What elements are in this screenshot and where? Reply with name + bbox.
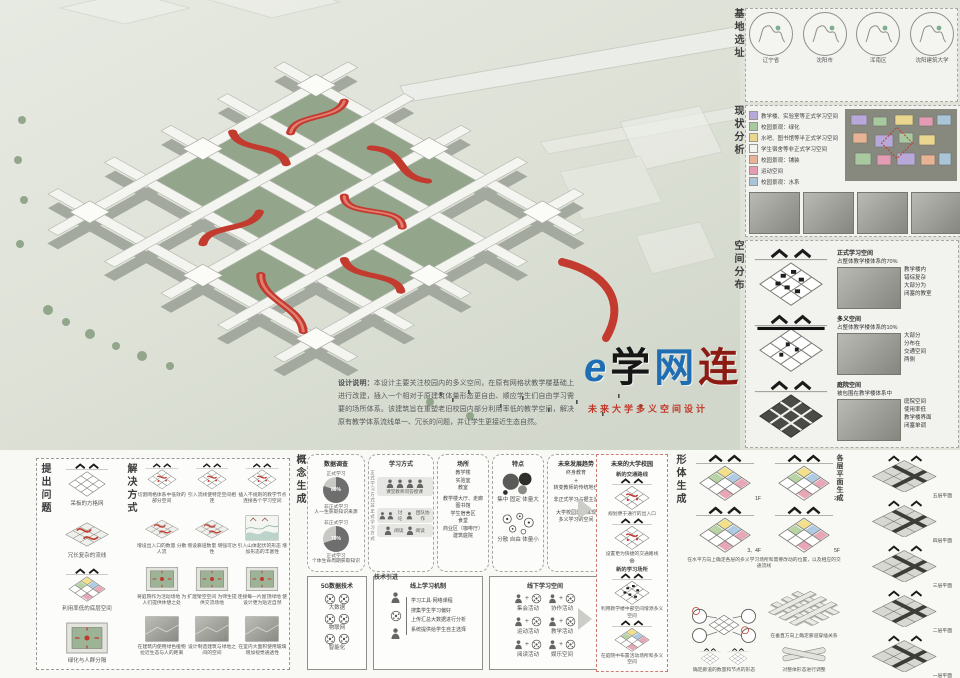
space-distribution-label: 空间分布 (732, 240, 742, 448)
plan-1f (690, 454, 760, 504)
polysemous-space-diagram (749, 314, 833, 376)
network-icon (324, 613, 336, 625)
leisure-icon (548, 640, 557, 650)
site-map-district: 浑南区 (856, 12, 900, 65)
presentation-board: e 学 网 连 未来大学多义空间设计 设计说明：本设计主要关注校园内的多义空间，… (0, 0, 960, 678)
problem-diagram: 绿化与人群分隔 (51, 620, 123, 665)
entrance-plan-diagram (606, 478, 658, 512)
site-photo (749, 192, 800, 234)
plan-5f (769, 506, 839, 556)
smart-icon (324, 633, 336, 645)
places-box: 场所 教学楼 实验室 教室 教学楼大厅、走廊 图书馆 学生宿舍区 食堂 商业区（… (437, 454, 489, 572)
data-survey-box: 数据调查 正式学习 80% 非正式学习 人一生获取知识来源 非正式学习 70% … (307, 454, 365, 572)
offline-activity: + 教学活动 (548, 615, 576, 636)
solution-diagram: 切割网格体系中低效的部分空间 (137, 463, 186, 513)
mountain-form-diagram (240, 514, 284, 542)
problem-label: 提出问题 (39, 463, 49, 665)
person-icon (384, 526, 392, 536)
courtyard-plan-diagram (606, 620, 658, 654)
formal-space-diagram (749, 248, 833, 310)
legend-swatch (749, 177, 758, 186)
data-upload-icon (390, 610, 402, 622)
teaching-icon (548, 617, 557, 627)
data-node-icon (338, 593, 350, 605)
node-detail-diagram (686, 604, 762, 646)
site-photo (911, 192, 960, 234)
distribution-row-formal: 正式学习空间 占整体教学楼体系的70% 教学楼内 错综复杂 大部分为 闭塞的教室 (749, 248, 955, 310)
person-icon (386, 479, 394, 489)
rigid-grid-diagram (59, 463, 115, 499)
solution-diagram: 引入流线使特定空间相连 (187, 463, 236, 513)
corridor-node-step: 确定廊道的数量和节点的形态 (686, 572, 762, 674)
solution-diagram: 在室内大面积使用玻璃 增加视觉通透性 (238, 615, 287, 665)
person-icon (396, 479, 404, 489)
student-icon (390, 628, 401, 640)
floor-plate-diagram: 五层平面 (845, 454, 958, 499)
future-campus-column: 未来的大学校园 新的交通路线 规划便于通行的出入口 设置更为快捷的交通路线 ⊕ … (596, 454, 668, 672)
node-icon (531, 639, 542, 650)
glass-interior-photo (240, 615, 284, 643)
person-icon (406, 511, 413, 521)
entrance-diagram (140, 514, 184, 542)
floor-4-diagram (854, 499, 958, 537)
corridor-diagram (190, 514, 234, 542)
floor-plan-diagram: 5F (765, 506, 842, 556)
offline-activity: + 协作活动 (548, 592, 576, 613)
crossing-bars-diagram (769, 642, 839, 666)
site-map-city: 沈阳市 (803, 12, 847, 65)
sport-icon (514, 617, 523, 627)
circle-plus-icon: ⊕ (629, 558, 635, 565)
legend-swatch (749, 122, 758, 131)
map-squiggle-icon (912, 14, 952, 54)
reading-icon (514, 640, 523, 650)
problem-solution-panel: 提出问题 呆板的方格网 冗长复杂的流线 利用率低的底层空间 (36, 458, 290, 670)
form-caption: 在水平方向上确定各层的多义学习场所和需要改动的位置，以及相应的交通流线 (686, 558, 842, 570)
map-squiggle-icon (751, 14, 791, 54)
solution-diagram: 增设出入口的数量 分散人流 (137, 514, 186, 564)
group-icon (548, 594, 557, 604)
right-analysis-panel: 基地选址 辽宁省 沈阳市 浑南区 (732, 8, 958, 448)
solution-diagram: 插入不规则的教学节点 连接各个学习空间 (238, 463, 287, 513)
bottom-diagram-band: 提出问题 呆板的方格网 冗长复杂的流线 利用率低的底层空间 (0, 450, 960, 678)
floor-1-diagram (854, 634, 958, 672)
floor-3-diagram (854, 544, 958, 582)
logo-char-wang: 网 (654, 348, 694, 388)
offline-activity: + 集会活动 (514, 592, 542, 613)
node-icon (531, 616, 542, 627)
site-selection-label: 基地选址 (732, 8, 742, 102)
form-generation-panel: 形体生成 1F 2F 3、4F (674, 454, 832, 674)
floor-plan-diagram: 1F (686, 454, 763, 504)
mid-space-plan-diagram (606, 573, 658, 607)
status-analysis-section: 现状分析 教学楼、实验室等正式学习空间 校园景观：绿化 水吧、图书馆等半正式学习… (732, 105, 958, 237)
plan-2f (769, 454, 839, 504)
stilt-space-diagram (190, 565, 234, 593)
floor-plan-diagram: 2F (765, 454, 842, 504)
ground-floor-plan-diagram (59, 568, 115, 604)
legend-swatch (749, 133, 758, 142)
green-material-photo (140, 615, 184, 643)
courtyard-activity-diagram (140, 565, 184, 593)
annotation: 庭院空间 使用率低 教学楼界面 闭塞单调 (904, 399, 932, 441)
network-icon (338, 613, 350, 625)
courtyard-space-diagram (749, 380, 833, 442)
lattice-cut-diagram (140, 463, 184, 491)
weave-axon-diagram (766, 586, 842, 632)
node-icon (565, 639, 576, 650)
site-selection-section: 基地选址 辽宁省 沈阳市 浑南区 (732, 8, 958, 102)
form-generation-label: 形体生成 (674, 454, 684, 674)
project-logo: e 学 网 连 (584, 348, 738, 388)
site-map-campus: 沈阳建筑大学 (910, 12, 954, 65)
concept-label: 概念生成 (294, 454, 304, 674)
legend-swatch (749, 144, 758, 153)
solution-diagram: 增设廊道数量 增强可达性 (187, 514, 236, 564)
logo-char-xue: 学 (610, 348, 650, 388)
route-plan-diagram (606, 518, 658, 552)
bubbles-concentrated-diagram (498, 470, 538, 497)
distribution-row-courtyard: 庭院空间 被包围在教学楼体系中 庭院空间 使用率低 教学楼界面 闭塞单调 (749, 380, 955, 442)
floor-plan-diagram: 3、4F (686, 506, 763, 556)
status-analysis-label: 现状分析 (732, 105, 742, 237)
map-squiggle-icon (805, 14, 845, 54)
floor-5-diagram (854, 454, 958, 492)
distribution-row-polysemous: 多义空间 占整体教学楼体系的10% 大部分 分布在 交通空间 两侧 (749, 314, 955, 376)
corridor-photo (837, 333, 901, 375)
corridor-photo (837, 267, 901, 309)
person-icon (406, 526, 414, 536)
circulation-diagram (59, 515, 115, 551)
data-node-icon (324, 593, 336, 605)
flow-arrow-icon (578, 498, 592, 520)
lattice-node-diagram (240, 463, 284, 491)
courtyard-separation-diagram (59, 620, 115, 656)
problem-section: 提出问题 呆板的方格网 冗长复杂的流线 利用率低的底层空间 (39, 463, 123, 665)
mini-lattice-diagram (697, 648, 723, 666)
tech-box-online: 线上学习机制 学习工具·网络课程 搜集学生学习偏好 上传汇总大数据进行分析 (373, 576, 483, 670)
plus-icon: + (574, 478, 578, 485)
person-icon (406, 479, 414, 489)
offline-activity: + 运动活动 (514, 615, 542, 636)
floor-plate-diagram: 四层平面 (845, 499, 958, 544)
site-map-province: 辽宁省 (749, 12, 793, 65)
technology-row: 技术引进 5G数据技术 大数据 物联网 (307, 576, 605, 670)
solution-diagram: 引入山体起伏的形态 增加形态的丰富性 (238, 514, 287, 564)
map-squiggle-icon (858, 14, 898, 54)
project-subtitle: 未来大学多义空间设计 (588, 402, 708, 415)
floor-plates-column: 各层平面生成 五层平面 四层平面 三层平面 二层平面 (836, 454, 958, 674)
floor-plate-diagram: 三层平面 (845, 544, 958, 589)
problem-diagram: 呆板的方格网 (51, 463, 123, 508)
space-distribution-section: 空间分布 正式学习空间 占整体教学楼体系的70% 教学楼内 错综复杂 大部分为 (732, 240, 958, 448)
campus-landuse-map (845, 109, 957, 181)
site-photo (803, 192, 854, 234)
person-icon (416, 479, 424, 489)
annotation: 大部分 分布在 交通空间 两侧 (904, 333, 926, 375)
solution-diagram: 连接每一片屋顶绿地 使设计更为贴近自然 (238, 565, 287, 615)
traits-box: 特点 集中 固定 体量大 分散 自由 体量小 (492, 454, 544, 572)
design-statement-body: 本设计主要关注校园内的多义空间，在原有网格状教学楼基础上进行改建，插入一个相对于… (338, 380, 574, 426)
floor-plates-label: 各层平面生成 (836, 454, 843, 674)
person-icon (387, 511, 394, 521)
offline-activity: + 阅读活动 (514, 638, 542, 659)
node-icon (531, 593, 542, 604)
group-icon (514, 594, 523, 604)
solution-diagram: 在建筑内使用绿色植物 拉近生态与人的距离 (137, 615, 186, 665)
lattice-link-diagram (190, 463, 234, 491)
logo-char-e: e (584, 348, 606, 388)
annotation: 教学楼内 错综复杂 大部分为 闭塞的教室 (904, 267, 932, 309)
flow-arrow-icon (578, 608, 592, 630)
solution-label: 解决方式 (125, 463, 135, 665)
informal-method: 阅读 阅读 (377, 524, 433, 537)
site-photos (749, 192, 960, 234)
legend-swatch (749, 166, 758, 175)
floor-2-diagram (854, 589, 958, 627)
offline-activity: + 娱乐空间 (548, 638, 576, 659)
solution-section: 解决方式 切割网格体系中低效的部分空间 引入流线使特定空间相连 插入不规则的教学… (125, 463, 287, 665)
pie-chart-knowledge-source: 80% (323, 477, 349, 503)
smart-icon (338, 633, 350, 645)
solution-diagram: 设计制造建筑与绿地之间的空间 (187, 615, 236, 665)
problem-diagram: 冗长复杂的流线 (51, 515, 123, 560)
technology-label: 技术引进 (374, 572, 398, 581)
green-gap-photo (190, 615, 234, 643)
person-icon (379, 511, 386, 521)
concept-generation-panel: 概念生成 数据调查 正式学习 80% 非正式学习 人一生获取知识来源 非正式学习… (294, 454, 592, 674)
legend-swatch (749, 111, 758, 120)
site-photo (857, 192, 908, 234)
learning-methods-box: 学习方式 正式学习方式 课堂教师问答授课 (368, 454, 434, 572)
solution-diagram: 扩建架空空间 为师生提供交流场地 (187, 565, 236, 615)
tech-box-5g: 5G数据技术 大数据 物联网 (307, 576, 367, 670)
status-legend: 教学楼、实验室等正式学习空间 校园景观：绿化 水吧、图书馆等半正式学习空间 学生… (749, 109, 841, 188)
roof-green-diagram (240, 565, 284, 593)
vertical-weave-step: 在垂直方向上确定廊道穿插关系 对整体形态进行调整 (766, 572, 842, 674)
courtyard-photo (837, 399, 901, 441)
node-icon (565, 593, 576, 604)
learner-icon (390, 592, 401, 604)
pie-chart-lifecycle: 70% (323, 526, 349, 552)
design-statement: 设计说明：本设计主要关注校园内的多义空间，在原有网格状教学楼基础上进行改建，插入… (338, 378, 574, 430)
legend-swatch (749, 155, 758, 164)
mini-lattice-diagram (725, 648, 751, 666)
node-icon (565, 616, 576, 627)
design-statement-label: 设计说明： (338, 380, 374, 387)
formal-method: 课堂教师问答授课 (377, 477, 433, 496)
floor-plate-diagram: 一层平面 (845, 634, 958, 678)
problem-diagram: 利用率低的底层空间 (51, 568, 123, 613)
solution-diagram: 将庭院作为活动场地 为人们提供休憩之处 (137, 565, 186, 615)
floor-plate-diagram: 二层平面 (845, 589, 958, 634)
informal-method: 讨论 团队协作 (377, 508, 433, 523)
bubbles-dispersed-diagram (498, 510, 538, 537)
